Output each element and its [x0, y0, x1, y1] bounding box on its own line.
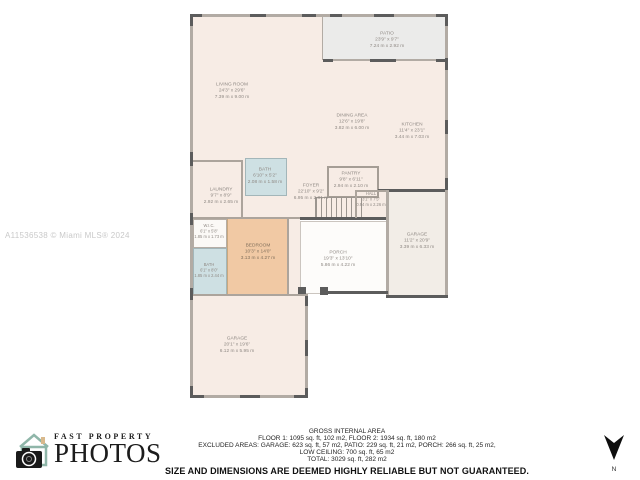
- wall-segment: [436, 59, 448, 62]
- fast-property-photos-logo: FAST PROPERTY PHOTOS: [10, 429, 160, 475]
- mls-watermark: A11536538 © Miami MLS® 2024: [5, 231, 130, 240]
- wall-segment: [370, 59, 396, 62]
- room-label-porch: PORCH 19'3" x 13'10" 5.86 m x 4.22 m: [321, 249, 355, 268]
- floor-plan: PATIO 23'9" x 9'7" 7.24 m x 2.92 m LIVIN…: [0, 0, 640, 480]
- wall-porch-bottom: [320, 291, 388, 294]
- wall-garage-right-bottom: [386, 295, 448, 298]
- wall-segment: [323, 59, 333, 62]
- north-arrow-icon: [603, 435, 625, 461]
- room-dims-m: 2.92 m x 2.65 m: [204, 199, 238, 205]
- wall-top: [190, 14, 448, 17]
- room-dims-m: 1.85 m x 2.44 m: [194, 274, 223, 280]
- room-dims-m: 3.13 m x 4.27 m: [241, 255, 275, 261]
- room-label-garage-right: GARAGE 11'2" x 20'9" 3.39 m x 6.33 m: [400, 231, 434, 250]
- room-label-garage-main: GARAGE 20'1" x 19'6" 6.12 m x 5.95 m: [220, 335, 254, 354]
- room-dims-m: 1.85 m x 1.73 m: [194, 235, 223, 241]
- room-dims-m: 3.82 m x 6.00 m: [335, 125, 369, 131]
- wall-living-laundry: [190, 160, 243, 162]
- wall-laundry-right: [241, 160, 243, 218]
- room-label-patio: PATIO 23'9" x 9'7" 7.24 m x 2.92 m: [370, 30, 404, 49]
- north-compass: N: [602, 435, 626, 473]
- wall-left: [190, 14, 193, 398]
- room-label-bath-upper: BATH 6'10" x 5'2" 2.08 m x 1.58 m: [248, 166, 282, 185]
- room-label-bedroom: BEDROOM 10'3" x 14'0" 3.13 m x 4.27 m: [241, 242, 275, 261]
- wall-patio-left: [322, 15, 323, 60]
- wall-garage-main-top: [190, 294, 308, 296]
- room-label-pantry: PANTRY 9'8" x 6'11" 2.94 m x 2.10 m: [334, 170, 368, 189]
- room-label-hall: HALL 3'1" x 7'5" 0.94 m x 2.26 m: [356, 192, 385, 209]
- room-dims-m: 2.94 m x 2.10 m: [334, 183, 368, 189]
- room-label-bath-lower: BATH 6'1" x 8'0" 1.85 m x 2.44 m: [194, 263, 223, 280]
- north-label: N: [602, 466, 626, 473]
- wall-segment: [190, 152, 193, 166]
- room-label-dining-area: DINING AREA 12'6" x 19'8" 3.82 m x 6.00 …: [335, 112, 369, 131]
- wall-segment: [445, 14, 448, 26]
- wall-foyer-bottom: [300, 217, 386, 220]
- wall-segment: [250, 14, 266, 17]
- wall-segment: [305, 388, 308, 398]
- wall-segment: [240, 395, 260, 398]
- wall-segment: [302, 14, 316, 17]
- wall-bedroom-row-top: [190, 217, 300, 219]
- room-dims-m: 6.95 m x 2.81 m: [294, 195, 328, 201]
- wall-segment: [190, 213, 193, 225]
- wall-bedroom-right: [287, 218, 289, 294]
- wall-segment: [305, 296, 308, 306]
- room-label-foyer: FOYER 22'10" x 9'2" 6.95 m x 2.81 m: [294, 182, 328, 201]
- room-label-kitchen: KITCHEN 11'4" x 23'1" 3.44 m x 7.03 m: [395, 121, 429, 140]
- room-dims-m: 3.44 m x 7.03 m: [395, 134, 429, 140]
- wall-segment: [190, 14, 193, 26]
- wall-segment: [374, 14, 394, 17]
- room-dims-m: 7.24 m x 2.92 m: [370, 43, 404, 49]
- wall-segment: [445, 120, 448, 134]
- porch-post-right: [320, 287, 328, 295]
- room-dims-m: 6.12 m x 5.95 m: [220, 348, 254, 354]
- room-dims-m: 3.39 m x 6.33 m: [400, 244, 434, 250]
- room-label-living-room: LIVING ROOM 24'3" x 29'6" 7.39 m x 9.00 …: [215, 81, 249, 100]
- room-label-laundry: LAUNDRY 9'7" x 8'9" 2.92 m x 2.65 m: [204, 186, 238, 205]
- wall-segment: [190, 288, 193, 300]
- room-dims-m: 0.94 m x 2.26 m: [356, 203, 385, 209]
- room-label-wic: W.I.C. 6'1" x 5'8" 1.85 m x 1.73 m: [194, 224, 223, 241]
- wall-garage-right-left: [386, 190, 389, 298]
- logo-bottom-text: PHOTOS: [54, 441, 162, 465]
- wall-segment: [330, 14, 342, 17]
- room-dims-m: 2.08 m x 1.58 m: [248, 179, 282, 185]
- wall-garage-right-right: [445, 190, 448, 298]
- house-camera-icon: [12, 429, 56, 473]
- wall-segment: [190, 395, 204, 398]
- room-dims-m: 7.39 m x 9.00 m: [215, 94, 249, 100]
- room-dims-m: 5.86 m x 4.22 m: [321, 262, 355, 268]
- wall-segment: [445, 178, 448, 190]
- wall-right: [445, 14, 448, 190]
- wall-segment: [305, 340, 308, 356]
